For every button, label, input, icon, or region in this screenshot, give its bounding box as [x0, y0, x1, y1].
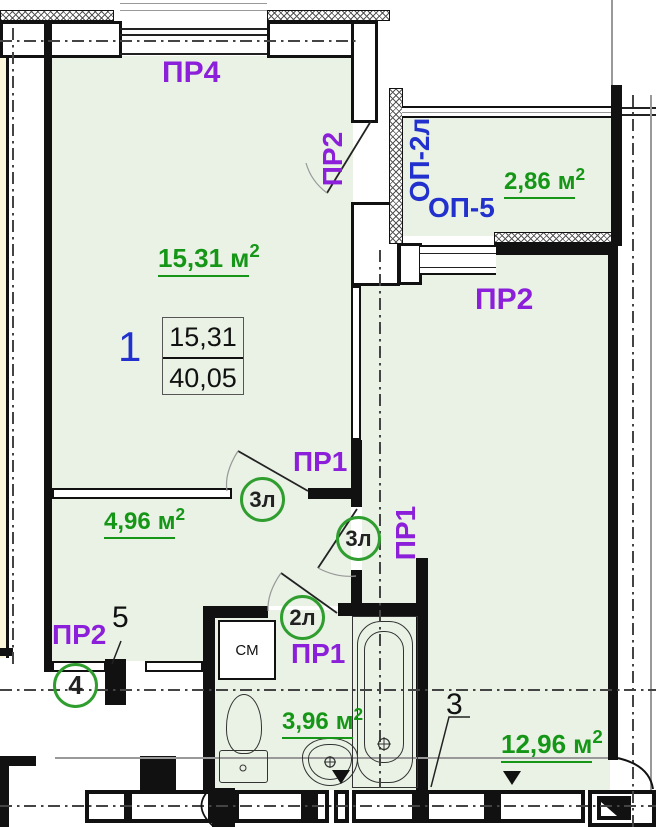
floor-plan: СМ	[0, 0, 656, 827]
area-bath-unit: м	[336, 708, 354, 735]
axis-circle-4-label: 4	[68, 670, 82, 701]
door-circle-3l-kitchen-label: 3л	[345, 526, 371, 552]
area-hall-value: 4,96	[104, 508, 151, 535]
door-circle-3l-living: 3л	[240, 477, 285, 522]
area-label-bath: 3,96м2	[282, 706, 363, 734]
area-kitchen-sup: 2	[592, 726, 602, 747]
area-hall-unit: м	[158, 508, 176, 535]
door-label-pr2-kitchen: ПР2	[475, 285, 533, 315]
door-label-pr1-bath: ПР1	[291, 640, 345, 668]
door-label-pr4: ПР4	[162, 58, 220, 88]
area-kitchen-value: 12,96	[501, 729, 566, 759]
area-hall-sup: 2	[175, 504, 185, 524]
door-circle-3l-living-label: 3л	[249, 487, 275, 513]
area-balcony-sup: 2	[575, 164, 585, 184]
door-label-pr2-balcony: ПР2	[318, 121, 348, 197]
door-circle-3l-kitchen: 3л	[336, 516, 381, 561]
door-circle-2l-bath: 2л	[280, 595, 325, 640]
window-label-op-5: ОП-5	[428, 194, 495, 222]
area-label-hall: 4,96м2	[104, 506, 185, 534]
area-label-kitchen: 12,96м2	[501, 728, 603, 757]
area-living-unit: м	[230, 243, 249, 273]
door-label-pr2-entry: ПР2	[52, 621, 106, 649]
toilet-knob-icon	[240, 765, 246, 771]
sink-drain-cross-icon	[324, 756, 336, 768]
door-label-pr1-hall: ПР1	[293, 448, 347, 476]
exit-door-arc	[612, 757, 653, 789]
direction-triangle-bath	[332, 770, 350, 784]
area-ratio-box: 15,31 40,05	[162, 317, 244, 395]
room-number: 1	[118, 326, 141, 368]
entry-door-arc	[201, 788, 213, 826]
area-label-balcony: 2,86м2	[504, 166, 585, 194]
area-living-sup: 2	[249, 240, 259, 261]
leader-line-mark-5	[112, 641, 121, 664]
leader-line-mark-3	[431, 717, 470, 787]
door-circle-2l-bath-label: 2л	[289, 605, 315, 631]
area-ratio-numerator: 15,31	[163, 319, 243, 359]
axis-circle-4: 4	[53, 663, 98, 708]
area-balcony-unit: м	[558, 168, 576, 195]
axis-mark-3: 3	[446, 690, 463, 720]
bathtub-drain-cross-icon	[377, 737, 391, 751]
direction-triangle-kitchen	[503, 771, 521, 785]
area-label-living: 15,31м2	[158, 242, 260, 271]
area-kitchen-unit: м	[573, 729, 592, 759]
area-balcony-value: 2,86	[504, 168, 551, 195]
area-living-value: 15,31	[158, 243, 223, 273]
area-ratio-denominator: 40,05	[163, 359, 243, 394]
door-arc-living-hall	[226, 451, 238, 491]
area-bath-sup: 2	[353, 704, 363, 724]
door-arc-bathroom	[268, 573, 281, 611]
axis-mark-5: 5	[112, 603, 129, 633]
area-bath-value: 3,96	[282, 708, 329, 735]
door-label-pr1-kitchen: ПР1	[392, 497, 420, 569]
door-arc-hall-kitchen	[318, 568, 356, 576]
